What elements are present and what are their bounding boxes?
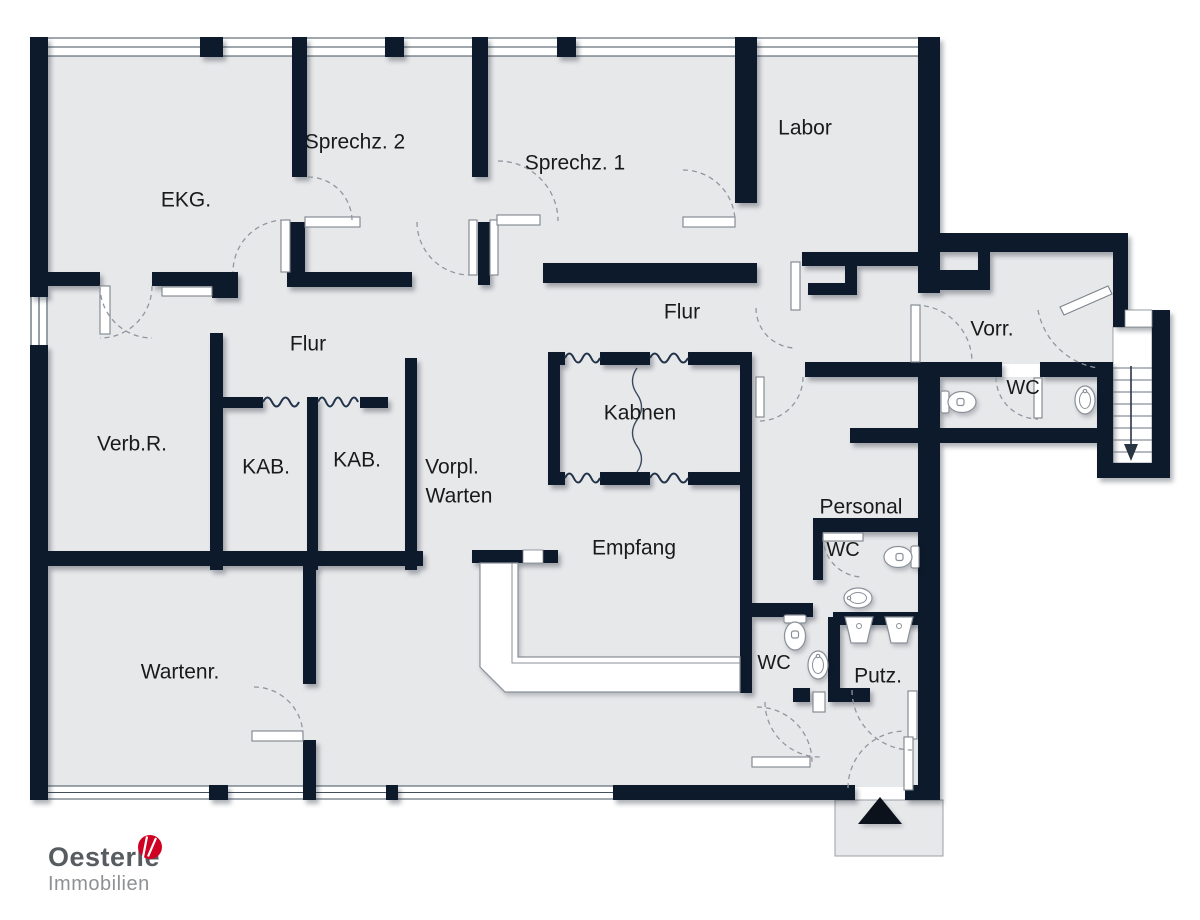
room-label-labor: Labor — [778, 117, 832, 140]
sink-icon — [808, 651, 828, 679]
toilet-icon — [941, 391, 976, 413]
logo: Oesterle Immobilien — [48, 835, 162, 895]
room-label-wartenr: Wartenr. — [141, 661, 220, 684]
room-label-wc-personal: WC — [826, 539, 859, 561]
room-label-ekg: EKG. — [161, 189, 211, 212]
sink-icon — [844, 588, 872, 608]
reception-pass-through — [523, 550, 543, 563]
floor-plan: EKG. Sprechz. 2 Sprechz. 1 Labor Flur Fl… — [0, 0, 1200, 920]
room-label-putz: Putz. — [854, 665, 902, 688]
room-label-wc-bottom: WC — [757, 652, 790, 674]
sink-icon — [1075, 386, 1095, 414]
room-label-empfang: Empfang — [592, 537, 676, 560]
room-label-vorpl-2: Warten — [426, 485, 493, 508]
room-label-vorpl-1: Vorpl. — [425, 456, 479, 479]
room-label-kab1: KAB. — [242, 456, 290, 479]
logo-disc-icon — [138, 835, 162, 859]
room-label-flur-west: Flur — [290, 333, 326, 356]
room-label-flur-east: Flur — [664, 301, 700, 324]
stair-floor — [1113, 327, 1152, 463]
toilet-icon — [884, 546, 919, 568]
logo-subtitle: Immobilien — [48, 873, 150, 895]
room-label-vorr: Vorr. — [970, 318, 1013, 341]
room-label-kab2: KAB. — [333, 449, 381, 472]
room-label-sprechz2: Sprechz. 2 — [305, 131, 405, 154]
room-label-verbr: Verb.R. — [97, 433, 167, 456]
room-label-kabnen: Kabnen — [604, 402, 676, 425]
room-label-wc-right: WC — [1006, 377, 1039, 399]
floor-plan-page: EKG. Sprechz. 2 Sprechz. 1 Labor Flur Fl… — [0, 0, 1200, 920]
toilet-icon — [784, 615, 806, 650]
room-label-sprechz1: Sprechz. 1 — [525, 152, 625, 175]
room-label-personal: Personal — [820, 496, 903, 519]
stair-landing — [1125, 310, 1152, 327]
